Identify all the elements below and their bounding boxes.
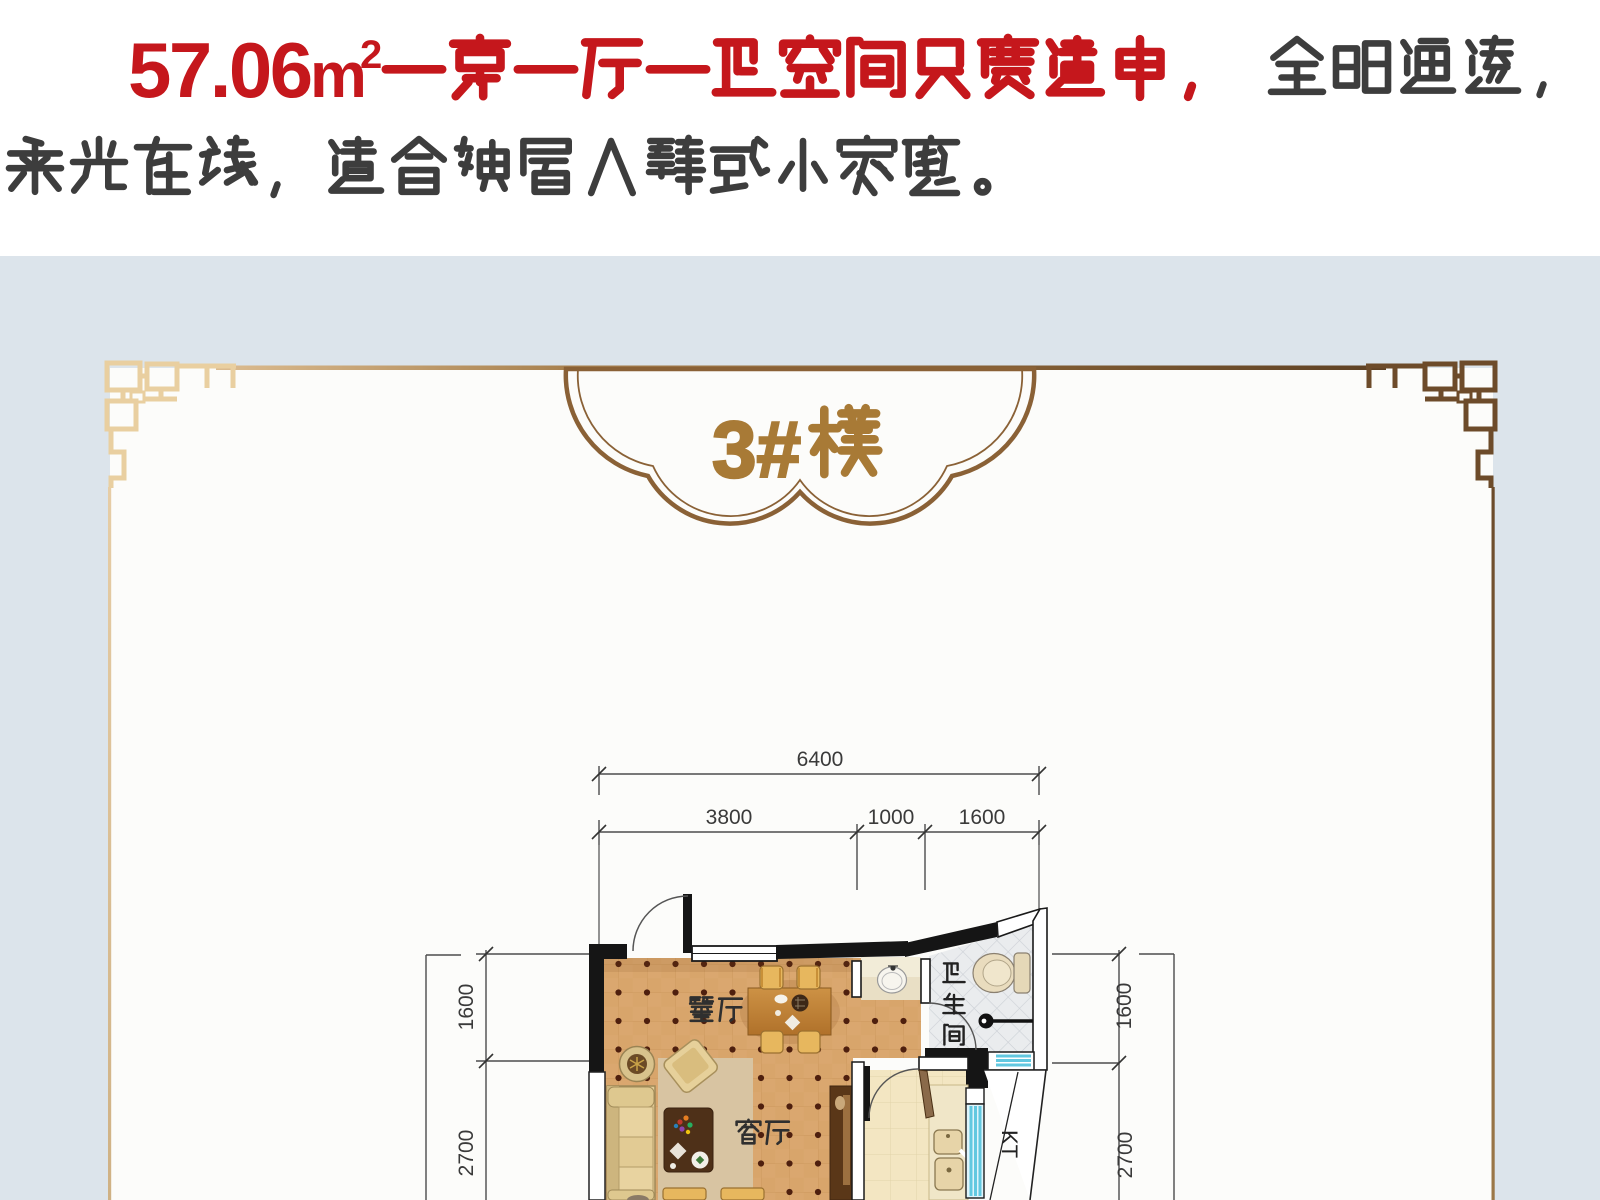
svg-text:m: m bbox=[310, 39, 367, 111]
svg-text:2: 2 bbox=[360, 33, 382, 77]
svg-text:3#: 3# bbox=[712, 405, 801, 494]
svg-text:2700: 2700 bbox=[455, 1130, 478, 1177]
svg-text:2700: 2700 bbox=[1114, 1132, 1137, 1179]
svg-text:1600: 1600 bbox=[959, 806, 1006, 829]
svg-text:6400: 6400 bbox=[797, 748, 844, 771]
svg-text:57.06: 57.06 bbox=[128, 26, 311, 114]
svg-text:KT: KT bbox=[997, 1130, 1022, 1158]
svg-text:1600: 1600 bbox=[455, 984, 478, 1031]
svg-text:1000: 1000 bbox=[868, 806, 915, 829]
svg-text:3800: 3800 bbox=[706, 806, 753, 829]
svg-text:1600: 1600 bbox=[1113, 983, 1136, 1030]
